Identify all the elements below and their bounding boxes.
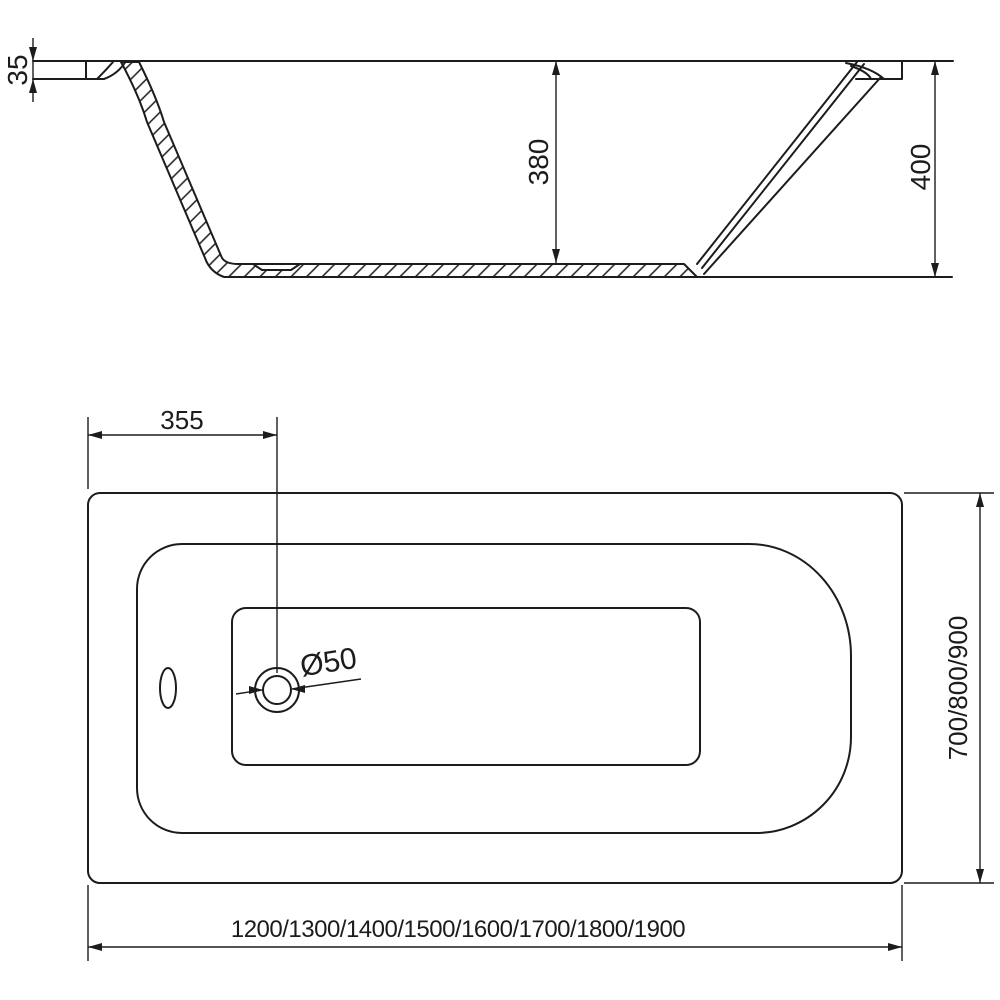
dim-width-options-label: 700/800/900 [943,616,973,761]
dim-inner-depth-label: 380 [523,139,554,186]
bathtub-technical-drawing: 35 380 400 [0,0,1000,1000]
dim-drain-offset-label: 355 [160,405,203,435]
drawing-svg: 35 380 400 [0,0,1000,1000]
drain-recess-profile [253,264,300,270]
dim-rim-thickness-label: 35 [2,54,33,85]
dim-total-height-label: 400 [905,144,936,191]
dim-length-options-label: 1200/1300/1400/1500/1600/1700/1800/1900 [231,916,685,943]
drawing-background [0,0,1000,1000]
